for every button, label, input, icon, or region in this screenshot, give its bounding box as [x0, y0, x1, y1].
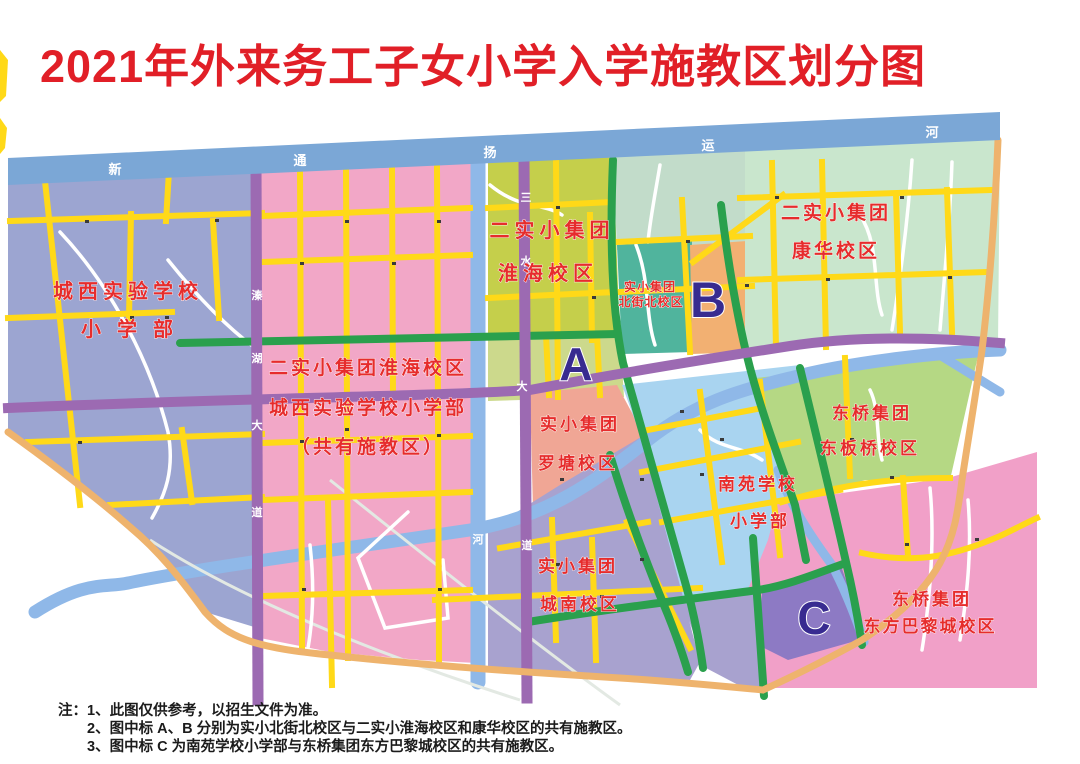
label-huaihai-shared: （共有施教区）	[291, 435, 445, 458]
sanshui-avenue-char: 三	[521, 191, 532, 204]
qinhu-avenue-char: 道	[252, 505, 263, 519]
footnote-3: 3、图中标 C 为南苑学校小学部与东桥集团东方巴黎城校区的共有施教区。	[87, 738, 632, 756]
label-dongbanqiao: 东板桥校区	[820, 438, 920, 458]
label-luotang: 罗塘校区	[538, 453, 618, 473]
sanshui-avenue-char: 道	[522, 538, 533, 552]
label-dongbanqiao: 东桥集团	[832, 403, 912, 423]
canal-name-char: 通	[293, 153, 306, 168]
canal-name-char: 运	[701, 138, 714, 153]
label-beijiebei: 实小集团	[624, 279, 676, 294]
label-beijiebei: 北街北校区	[618, 294, 683, 309]
district-map: 新 通 扬 运 河 河 溱 湖 大 道 三 水 大 道 城西实验学校 小学部 二…	[0, 0, 1080, 764]
label-kanghua: 二实小集团	[781, 201, 891, 224]
label-huaihai: 二实小集团	[490, 218, 615, 242]
label-chengxi: 小学部	[81, 317, 189, 341]
qinhu-avenue	[256, 166, 258, 700]
yellow-road	[597, 335, 600, 395]
label-chengnan: 城南校区	[540, 594, 620, 614]
yellow-road	[166, 171, 169, 221]
label-chengnan: 实小集团	[538, 556, 618, 576]
footnote-2: 2、图中标 A、B 分别为实小北街北校区与二实小淮海校区和康华校区的共有施教区。	[87, 720, 632, 738]
label-huaihai-shared: 城西实验学校小学部	[269, 396, 467, 419]
footnote-1: 1、此图仅供参考，以招生文件为准。	[87, 702, 632, 720]
left-edge-ribbon	[0, 50, 8, 154]
yellow-road	[772, 163, 776, 348]
river-name-char: 河	[473, 532, 484, 546]
marker-a: A	[559, 338, 592, 390]
canal-name-char: 扬	[483, 145, 496, 160]
footnotes-label: 注：	[58, 702, 87, 756]
sanshui-avenue-char: 大	[517, 379, 528, 393]
ribbon-fragment	[0, 118, 7, 154]
qinhu-avenue-char: 湖	[252, 351, 263, 365]
footnotes: 注： 1、此图仅供参考，以招生文件为准。 2、图中标 A、B 分别为实小北街北校…	[58, 702, 632, 756]
label-chengxi: 城西实验学校	[53, 279, 203, 303]
marker-c: C	[797, 592, 830, 644]
label-luotang: 实小集团	[540, 414, 620, 434]
ribbon-fragment	[0, 50, 8, 102]
school-district-map-page: 2021年外来务工子女小学入学施教区划分图	[0, 0, 1080, 764]
label-dongfangbali: 东桥集团	[892, 589, 972, 609]
label-huaihai-shared: 二实小集团淮海校区	[269, 356, 467, 379]
label-huaihai: 淮海校区	[498, 261, 598, 285]
label-kanghua: 康华校区	[792, 239, 880, 262]
canal-name-char: 新	[108, 162, 121, 177]
qinhu-avenue-char: 大	[252, 418, 263, 432]
label-nanyuan: 小学部	[730, 511, 790, 531]
footnotes-items: 1、此图仅供参考，以招生文件为准。 2、图中标 A、B 分别为实小北街北校区与二…	[87, 702, 632, 756]
label-nanyuan: 南苑学校	[718, 474, 798, 494]
qinhu-avenue-char: 溱	[252, 288, 264, 302]
yellow-road	[896, 194, 900, 332]
canal-name-char: 河	[925, 125, 938, 140]
label-dongfangbali: 东方巴黎城校区	[864, 616, 997, 636]
marker-b: B	[690, 272, 726, 328]
